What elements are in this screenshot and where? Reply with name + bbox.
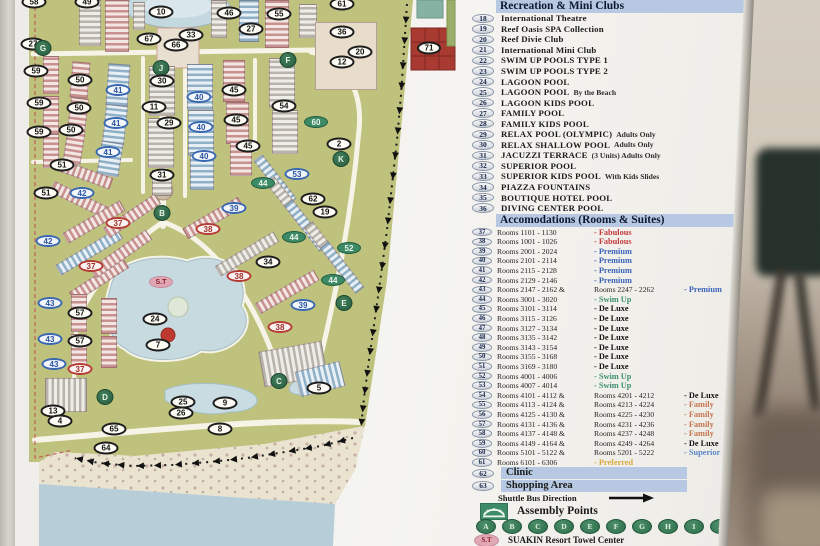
rooms-range-2: Rooms 4213 - 4224 — [594, 400, 684, 409]
rooms-range: Rooms 4101 - 4112 & — [497, 391, 594, 400]
assembly-letter-D: D — [554, 519, 574, 534]
item-note: Adults Only — [614, 140, 653, 149]
map-marker-38: 38 — [227, 270, 252, 282]
right-arrow-icon — [607, 493, 655, 503]
map-marker-45: 45 — [222, 84, 247, 97]
item-label: Reef Divie Club — [501, 34, 564, 44]
rooms-range: Rooms 4113 - 4124 & — [497, 400, 594, 409]
item-number-badge: 56 — [472, 410, 492, 419]
rooms-range: Rooms 3135 - 3142 — [497, 333, 594, 342]
map-marker-54: 54 — [272, 100, 297, 113]
item-number-badge: 26 — [472, 98, 494, 108]
assembly-letter-G: G — [632, 519, 652, 534]
legend-item-37: 37 Rooms 1101 - 1130 - Fabulous — [458, 227, 758, 237]
map-marker-64: 64 — [94, 442, 119, 455]
map-marker-29: 29 — [157, 117, 182, 130]
legend-item-60: 60 Rooms 5101 - 5122 & Rooms 5201 - 5222… — [458, 448, 758, 458]
room-category: - De Luxe — [684, 439, 719, 448]
legend-item-53: 53 Rooms 4007 - 4014 - Swim Up — [458, 381, 758, 391]
map-marker-59: 59 — [27, 126, 52, 139]
rooms-range: Rooms 3155 - 3168 — [497, 352, 594, 361]
map-marker-19: 19 — [313, 206, 338, 219]
rooms-range: Rooms 4007 - 4014 — [497, 381, 594, 390]
legend-item-35: 35 BOUTIQUE HOTEL POOL — [458, 192, 758, 203]
assembly-point-F: F — [280, 52, 297, 68]
item-number-badge: 20 — [472, 35, 494, 45]
map-marker-8: 8 — [208, 423, 233, 436]
shuttle-direction-row: Shuttle Bus Direction — [458, 492, 758, 503]
map-marker-44: 44 — [321, 274, 345, 286]
rooms-range: Rooms 4149 - 4164 & — [497, 439, 594, 448]
item-label: LAGOON KIDS POOL — [501, 98, 594, 108]
legend-item-41: 41 Rooms 2115 - 2128 - Premium — [458, 266, 758, 276]
assembly-letter-B: B — [502, 519, 522, 534]
room-category: - Swim Up — [594, 295, 631, 304]
section-title-recreation: Recreation & Mini Clubs — [496, 0, 752, 13]
item-number-badge: 63 — [472, 481, 494, 491]
map-marker-53: 53 — [285, 168, 310, 180]
recreation-list: 18 International Theatre 19 Reef Oasis S… — [458, 13, 758, 213]
item-number-badge: 49 — [472, 343, 492, 352]
map-marker-S.T: S.T — [149, 276, 173, 288]
rooms-range: Rooms 3127 - 3134 — [497, 324, 594, 333]
room-category: - De Luxe — [594, 324, 629, 333]
item-number-badge: 23 — [472, 66, 494, 76]
assembly-points-icon — [480, 503, 508, 520]
item-note: By the Beach — [573, 88, 616, 97]
rooms-range: Rooms 4001 - 4006 — [497, 372, 594, 381]
map-marker-7: 7 — [146, 339, 171, 352]
room-category: - Family — [684, 429, 714, 438]
rooms-range: Rooms 3101 - 3114 — [497, 304, 594, 313]
item-number-badge: 28 — [472, 119, 494, 129]
item-number-badge: 57 — [472, 420, 492, 429]
item-number-badge: 47 — [472, 324, 492, 333]
rooms-range: Rooms 3169 - 3180 — [497, 362, 594, 371]
map-marker-42: 42 — [70, 187, 95, 199]
item-number-badge: 36 — [472, 203, 494, 213]
item-label: SWIM UP POOLS TYPE 2 — [501, 66, 608, 76]
item-number-badge: 19 — [472, 24, 494, 34]
assembly-point-C: C — [271, 373, 288, 389]
item-label: JACUZZI TERRACE — [501, 150, 588, 160]
item-number-badge: 38 — [472, 238, 492, 247]
item-label: FAMILY POOL — [501, 108, 564, 118]
map-marker-40: 40 — [189, 121, 214, 133]
rooms-range: Rooms 3115 - 3126 — [497, 314, 594, 323]
resort-map: 584910676633274655276136201271GJF5950304… — [15, 0, 457, 546]
room-category: - Preferred — [594, 458, 633, 467]
legend-item-46: 46 Rooms 3115 - 3126 - De Luxe — [458, 314, 758, 324]
legend-item-42: 42 Rooms 2129 - 2146 - Premium — [458, 275, 758, 285]
legend-item-28: 28 FAMILY KIDS POOL — [458, 118, 758, 129]
assembly-letters-row: ABCDEFGHIJK — [458, 519, 758, 533]
room-category: - Swim Up — [594, 372, 631, 381]
legend-item-21: 21 International Mini Club — [458, 45, 758, 56]
shopping-area-label: Shopping Area — [501, 480, 687, 492]
legend-item-31: 31 JACUZZI TERRACE (3 Units) Adults Only — [458, 150, 758, 161]
map-marker-43: 43 — [38, 297, 63, 309]
legend-item-25: 25 LAGOON POOL By the Beach — [458, 87, 758, 98]
item-number-badge: 43 — [472, 286, 492, 295]
map-marker-50: 50 — [59, 124, 84, 137]
map-marker-71: 71 — [417, 42, 441, 55]
map-marker-45: 45 — [224, 114, 249, 127]
map-marker-39: 39 — [291, 299, 316, 311]
rooms-range-2: Rooms 5201 - 5222 — [594, 448, 684, 457]
room-category: - De Luxe — [684, 391, 719, 400]
room-category: - Family — [684, 410, 714, 419]
map-marker-37: 37 — [68, 363, 93, 375]
room-category: - Premium — [594, 256, 632, 265]
rooms-range-2: Rooms 4249 - 4264 — [594, 439, 684, 448]
map-marker-10: 10 — [149, 6, 174, 19]
rooms-range: Rooms 2147 - 2162 & — [497, 285, 594, 294]
map-marker-40: 40 — [192, 150, 217, 162]
room-category: - Premium — [594, 266, 632, 275]
map-marker-62: 62 — [301, 193, 326, 206]
item-number-badge: 24 — [472, 77, 494, 87]
room-category: - De Luxe — [594, 304, 629, 313]
item-number-badge: 31 — [472, 151, 494, 161]
rooms-range-2: Rooms 4231 - 4236 — [594, 420, 684, 429]
map-marker-51: 51 — [34, 187, 59, 200]
item-number-badge: 61 — [472, 458, 492, 467]
legend-item-47: 47 Rooms 3127 - 3134 - De Luxe — [458, 323, 758, 333]
legend-item-44: 44 Rooms 3001 - 3020 - Swim Up — [458, 295, 758, 305]
item-number-badge: 30 — [472, 140, 494, 150]
assembly-letter-A: A — [476, 519, 496, 534]
item-note: With Kids Slides — [605, 172, 659, 181]
photo-of-resort-map-sign: 584910676633274655276136201271GJF5950304… — [0, 0, 820, 546]
item-number-badge: 52 — [472, 372, 492, 381]
item-label: PIAZZA FOUNTAINS — [501, 182, 590, 192]
rooms-range: Rooms 2115 - 2128 — [497, 266, 594, 275]
item-number-badge: 50 — [472, 353, 492, 362]
map-marker-65: 65 — [102, 423, 127, 436]
room-category: - De Luxe — [594, 352, 629, 361]
legend-item-55: 55 Rooms 4113 - 4124 & Rooms 4213 - 4224… — [458, 400, 758, 410]
map-marker-2: 2 — [327, 138, 352, 151]
legend-item-61: 61 Rooms 6101 - 6306 - Preferred — [458, 458, 758, 468]
legend-item-23: 23 SWIM UP POOLS TYPE 2 — [458, 66, 758, 77]
map-marker-43: 43 — [42, 358, 67, 370]
assembly-point-D: D — [97, 389, 114, 405]
legend-item-58: 58 Rooms 4137 - 4148 & Rooms 4237 - 4248… — [458, 429, 758, 439]
map-marker-9: 9 — [213, 397, 238, 410]
assembly-point-K: K — [333, 151, 350, 167]
clinic-label: Clinic — [501, 467, 687, 479]
rooms-range-2: Rooms 4237 - 4248 — [594, 429, 684, 438]
map-markers-layer: 584910676633274655276136201271GJF5950304… — [15, 0, 457, 546]
item-number-badge: 33 — [472, 172, 494, 182]
item-number-badge: 27 — [472, 108, 494, 118]
legend-item-40: 40 Rooms 2101 - 2114 - Premium — [458, 256, 758, 266]
rooms-range: Rooms 5101 - 5122 & — [497, 448, 594, 457]
st-badge: S.T — [474, 534, 499, 546]
item-number-badge: 34 — [472, 182, 494, 192]
map-marker-37: 37 — [79, 260, 104, 272]
legend-item-52: 52 Rooms 4001 - 4006 - Swim Up — [458, 371, 758, 381]
legend-item-39: 39 Rooms 2001 - 2024 - Premium — [458, 247, 758, 257]
map-marker-55: 55 — [267, 8, 292, 21]
item-label: SUPERIOR KIDS POOL — [501, 171, 601, 181]
map-marker-58: 58 — [22, 0, 47, 9]
map-marker-50: 50 — [68, 74, 93, 87]
legend-item-26: 26 LAGOON KIDS POOL — [458, 97, 758, 108]
rooms-range: Rooms 2129 - 2146 — [497, 276, 594, 285]
map-marker-41: 41 — [106, 84, 131, 96]
legend-item-29: 29 RELAX POOL (OLYMPIC) Adults Only — [458, 129, 758, 140]
map-marker-34: 34 — [256, 256, 281, 269]
item-number-badge: 48 — [472, 333, 492, 342]
map-marker-46: 46 — [217, 7, 242, 20]
room-category: - Premium — [594, 276, 632, 285]
item-number-badge: 53 — [472, 381, 492, 390]
legend-item-45: 45 Rooms 3101 - 3114 - De Luxe — [458, 304, 758, 314]
room-category: - Fabulous — [594, 228, 632, 237]
map-marker-44: 44 — [282, 231, 306, 243]
room-category: - Swim Up — [594, 381, 631, 390]
item-label: BOUTIQUE HOTEL POOL — [501, 193, 612, 203]
legend-item-54: 54 Rooms 4101 - 4112 & Rooms 4201 - 4212… — [458, 390, 758, 400]
map-marker-50: 50 — [67, 102, 92, 115]
map-marker-51: 51 — [50, 159, 75, 172]
map-marker-42: 42 — [36, 235, 61, 247]
item-label: Reef Oasis SPA Collection — [501, 24, 604, 34]
legend-item-36: 36 DIVING CENTER POOL — [458, 203, 758, 214]
item-number-badge: 58 — [472, 429, 492, 438]
item-number-badge: 40 — [472, 257, 492, 266]
item-label: SWIM UP POOLS TYPE 1 — [501, 55, 608, 65]
legend-item-63: 63 Shopping Area — [458, 480, 758, 493]
rooms-range: Rooms 4131 - 4136 & — [497, 420, 594, 429]
map-marker-49: 49 — [75, 0, 100, 9]
assembly-points-label: Assembly Points — [517, 505, 598, 517]
map-marker-12: 12 — [330, 56, 355, 69]
legend-item-38: 38 Rooms 1001 - 1026 - Fabulous — [458, 237, 758, 247]
rooms-range: Rooms 4125 - 4130 & — [497, 410, 594, 419]
legend-item-51: 51 Rooms 3169 - 3180 - De Luxe — [458, 362, 758, 372]
item-number-badge: 39 — [472, 247, 492, 256]
sign-frame-edge — [0, 0, 15, 546]
rooms-range: Rooms 2101 - 2114 — [497, 256, 594, 265]
rooms-range-2: Rooms 4201 - 4212 — [594, 391, 684, 400]
item-label: SUPERIOR POOL — [501, 161, 576, 171]
assembly-point-B: B — [154, 205, 171, 221]
map-marker-20: 20 — [348, 46, 373, 59]
legend-item-57: 57 Rooms 4131 - 4136 & Rooms 4231 - 4236… — [458, 419, 758, 429]
map-marker-27: 27 — [239, 23, 264, 36]
assembly-letter-I: I — [684, 519, 704, 534]
sign-board: 584910676633274655276136201271GJF5950304… — [0, 0, 764, 546]
map-marker-38: 38 — [196, 223, 221, 235]
map-marker-30: 30 — [150, 75, 175, 88]
rooms-range: Rooms 1001 - 1026 — [497, 237, 594, 246]
map-marker-33: 33 — [179, 29, 204, 42]
legend-item-30: 30 RELAX SHALLOW POOL Adults Only — [458, 140, 758, 151]
item-number-badge: 60 — [472, 449, 492, 458]
item-label: LAGOON POOL — [501, 77, 569, 87]
map-marker-59: 59 — [24, 65, 49, 78]
item-note: Adults Only — [616, 130, 655, 139]
legend-item-62: 62 Clinic — [458, 467, 758, 480]
assembly-point-E: E — [336, 295, 353, 311]
legend-item-34: 34 PIAZZA FOUNTAINS — [458, 182, 758, 193]
assembly-letter-H: H — [658, 519, 678, 534]
map-marker-11: 11 — [142, 101, 167, 114]
legend-item-24: 24 LAGOON POOL — [458, 76, 758, 87]
room-category: - Premium — [594, 247, 632, 256]
map-marker-5: 5 — [307, 382, 332, 395]
item-number-badge: 29 — [472, 130, 494, 140]
rooms-list: 37 Rooms 1101 - 1130 - Fabulous 38 Rooms… — [458, 227, 758, 467]
room-category: - De Luxe — [594, 314, 629, 323]
map-marker-67: 67 — [137, 33, 162, 46]
item-number-badge: 45 — [472, 305, 492, 314]
map-marker-60: 60 — [304, 116, 328, 128]
map-marker-61: 61 — [330, 0, 355, 11]
item-number-badge: 32 — [472, 161, 494, 171]
item-number-badge: 35 — [472, 193, 494, 203]
legend-item-22: 22 SWIM UP POOLS TYPE 1 — [458, 55, 758, 66]
room-category: - De Luxe — [594, 362, 629, 371]
legend-panel: Recreation & Mini Clubs 18 International… — [458, 0, 758, 546]
item-label: RELAX SHALLOW POOL — [501, 140, 610, 150]
map-marker-37: 37 — [106, 217, 131, 229]
legend-item-33: 33 SUPERIOR KIDS POOL With Kids Slides — [458, 171, 758, 182]
assembly-letter-C: C — [528, 519, 548, 534]
legend-item-43: 43 Rooms 2147 - 2162 & Rooms 2247 - 2262… — [458, 285, 758, 295]
item-number-badge: 62 — [472, 469, 494, 479]
item-number-badge: 37 — [472, 228, 492, 237]
item-number-badge: 25 — [472, 87, 494, 97]
section-title-accommodations: Accomodations (Rooms & Suites) — [496, 214, 752, 227]
map-marker-45: 45 — [236, 140, 261, 153]
rooms-range: Rooms 4137 - 4148 & — [497, 429, 594, 438]
rooms-range: Rooms 2001 - 2024 — [497, 247, 594, 256]
assembly-letter-E: E — [580, 519, 600, 534]
map-marker-41: 41 — [96, 146, 121, 158]
legend-item-18: 18 International Theatre — [458, 13, 758, 24]
rooms-range-2: Rooms 2247 - 2262 — [594, 285, 684, 294]
map-marker-40: 40 — [187, 91, 212, 103]
item-number-badge: 54 — [472, 391, 492, 400]
item-note: (3 Units) Adults Only — [592, 151, 661, 160]
item-label: LAGOON POOL — [501, 87, 569, 97]
item-label: RELAX POOL (OLYMPIC) — [501, 129, 612, 139]
item-number-badge: 22 — [472, 56, 494, 66]
room-category: - Premium — [684, 285, 722, 294]
shuttle-direction-label: Shuttle Bus Direction — [498, 493, 577, 503]
legend-item-50: 50 Rooms 3155 - 3168 - De Luxe — [458, 352, 758, 362]
legend-item-27: 27 FAMILY POOL — [458, 108, 758, 119]
item-number-badge: 59 — [472, 439, 492, 448]
map-marker-52: 52 — [337, 242, 361, 254]
map-marker-59: 59 — [27, 97, 52, 110]
item-number-badge: 42 — [472, 276, 492, 285]
chair-silhouette — [756, 148, 820, 276]
legend-item-56: 56 Rooms 4125 - 4130 & Rooms 4225 - 4230… — [458, 410, 758, 420]
towel-center-label: SUAKIN Resort Towel Center — [508, 535, 624, 545]
map-marker-24: 24 — [143, 313, 168, 326]
legend-item-20: 20 Reef Divie Club — [458, 34, 758, 45]
rooms-range: Rooms 1101 - 1130 — [497, 228, 594, 237]
rooms-range: Rooms 6101 - 6306 — [497, 458, 594, 467]
map-marker-26: 26 — [169, 407, 194, 420]
map-marker-57: 57 — [68, 307, 93, 320]
map-marker-43: 43 — [38, 333, 63, 345]
item-number-badge: 21 — [472, 45, 494, 55]
item-number-badge: 18 — [472, 14, 494, 24]
item-label: FAMILY KIDS POOL — [501, 119, 589, 129]
floor-highlight — [760, 490, 820, 546]
legend-item-48: 48 Rooms 3135 - 3142 - De Luxe — [458, 333, 758, 343]
map-marker-36: 36 — [330, 26, 355, 39]
rooms-range: Rooms 3143 - 3154 — [497, 343, 594, 352]
map-marker-44: 44 — [251, 177, 275, 189]
assembly-point-G: G — [35, 40, 52, 56]
item-number-badge: 51 — [472, 362, 492, 371]
item-label: International Theatre — [501, 13, 587, 23]
room-category: - De Luxe — [594, 343, 629, 352]
legend-item-32: 32 SUPERIOR POOL — [458, 161, 758, 172]
item-label: International Mini Club — [501, 45, 597, 55]
item-number-badge: 55 — [472, 401, 492, 410]
legend-item-59: 59 Rooms 4149 - 4164 & Rooms 4249 - 4264… — [458, 438, 758, 448]
rooms-range: Rooms 3001 - 3020 — [497, 295, 594, 304]
map-marker-41: 41 — [104, 117, 129, 129]
item-number-badge: 44 — [472, 295, 492, 304]
legend-item-49: 49 Rooms 3143 - 3154 - De Luxe — [458, 343, 758, 353]
item-label: DIVING CENTER POOL — [501, 203, 603, 213]
map-marker-39: 39 — [222, 202, 247, 214]
item-number-badge: 46 — [472, 314, 492, 323]
rooms-range-2: Rooms 4225 - 4230 — [594, 410, 684, 419]
legend-item-19: 19 Reef Oasis SPA Collection — [458, 24, 758, 35]
item-number-badge: 41 — [472, 266, 492, 275]
room-category: - Family — [684, 420, 714, 429]
map-marker-38: 38 — [268, 321, 293, 333]
room-category: - Family — [684, 400, 714, 409]
room-category: - Fabulous — [594, 237, 632, 246]
assembly-points-row: Assembly Points — [458, 503, 758, 519]
map-marker-31: 31 — [150, 169, 175, 182]
map-marker-57: 57 — [68, 335, 93, 348]
towel-center-row: S.T SUAKIN Resort Towel Center — [458, 533, 758, 546]
map-marker-4: 4 — [48, 415, 73, 428]
assembly-letter-F: F — [606, 519, 626, 534]
room-category: - De Luxe — [594, 333, 629, 342]
